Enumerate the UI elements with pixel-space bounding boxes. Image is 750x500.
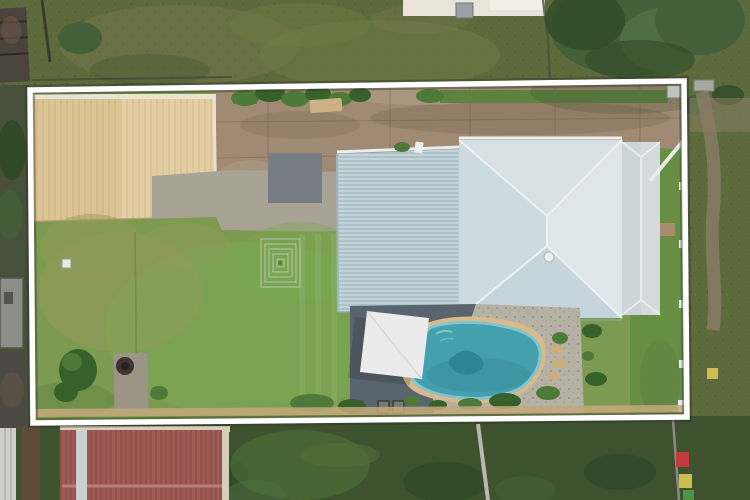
house-roof [337,138,660,320]
small-white-object [62,259,71,268]
red-shed-skylight-stripe [76,430,87,500]
brown-roof-strip [22,426,40,500]
neighbor-shed-top-left [0,7,30,83]
bright-grass-patch [230,430,370,500]
ac-unit [456,3,473,18]
concrete-pad [694,80,714,91]
planter-box [310,98,343,113]
aerial-photo-canvas [0,0,750,500]
yellow-box [707,368,718,379]
bush-top-left [58,22,102,54]
gutter-plant [394,142,410,152]
grey-roof-building [0,428,16,500]
red-box [676,452,689,467]
grey-slab [268,153,322,203]
roof-vent [544,252,554,262]
property-interior [25,70,720,423]
shed-gutter [33,94,216,99]
green-box [683,490,694,500]
white-pipe [414,141,423,153]
red-shed-roof [60,426,230,500]
rear-landing [658,223,675,236]
left-neighbor-strip [0,85,29,430]
yellow-box-2 [679,474,692,488]
small-plant [150,386,168,400]
neighbor-grey-shed [0,278,23,348]
aerial-photo [0,0,750,500]
